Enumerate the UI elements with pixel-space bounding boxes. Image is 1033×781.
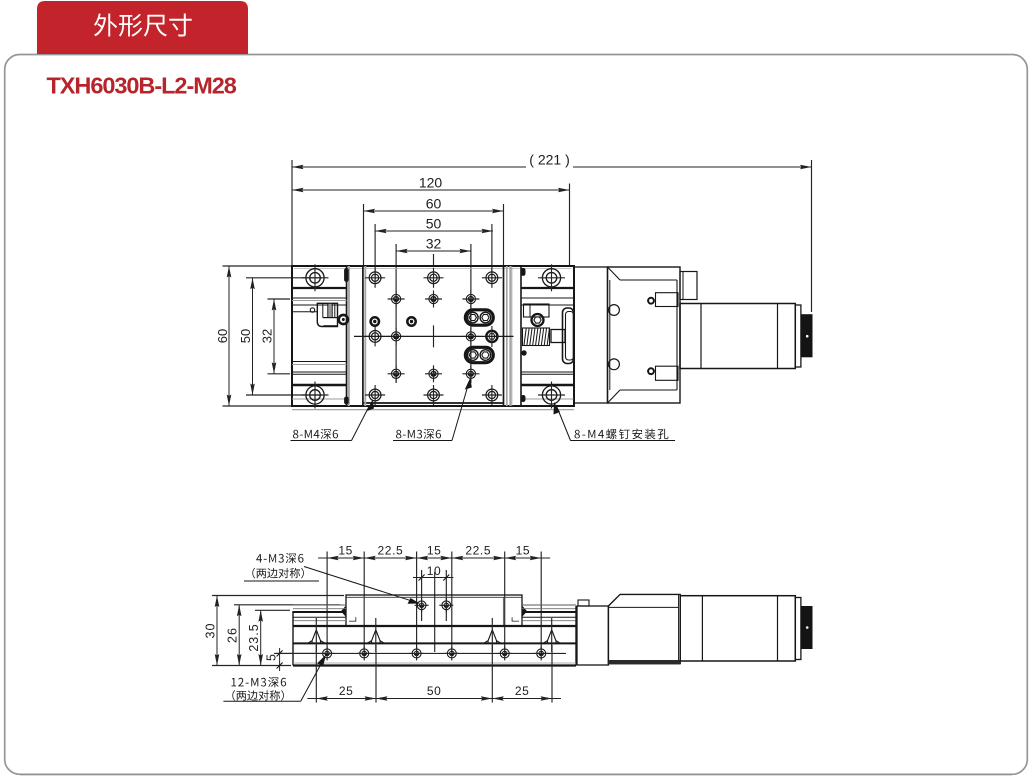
svg-text:32: 32: [260, 329, 275, 343]
svg-text:22.5: 22.5: [378, 544, 404, 558]
svg-text:15: 15: [427, 544, 442, 558]
svg-text:120: 120: [419, 175, 443, 191]
svg-text:10: 10: [427, 564, 442, 578]
svg-text:30: 30: [204, 623, 218, 639]
svg-text:22.5: 22.5: [465, 544, 491, 558]
svg-text:26: 26: [226, 627, 240, 643]
svg-text:50: 50: [426, 216, 442, 232]
svg-text:60: 60: [426, 196, 442, 212]
svg-text:23.5: 23.5: [247, 623, 261, 651]
svg-text:32: 32: [426, 236, 442, 252]
svg-text:25: 25: [339, 684, 354, 698]
svg-text:50: 50: [427, 684, 442, 698]
svg-text:5: 5: [265, 654, 279, 661]
svg-text:50: 50: [238, 329, 253, 343]
svg-text:25: 25: [515, 684, 530, 698]
svg-text:15: 15: [516, 544, 531, 558]
svg-text:15: 15: [338, 544, 353, 558]
svg-text:( 221 ): ( 221 ): [529, 152, 569, 168]
svg-text:TXH6030B-L2-M28: TXH6030B-L2-M28: [47, 72, 237, 98]
svg-text:60: 60: [215, 329, 230, 343]
